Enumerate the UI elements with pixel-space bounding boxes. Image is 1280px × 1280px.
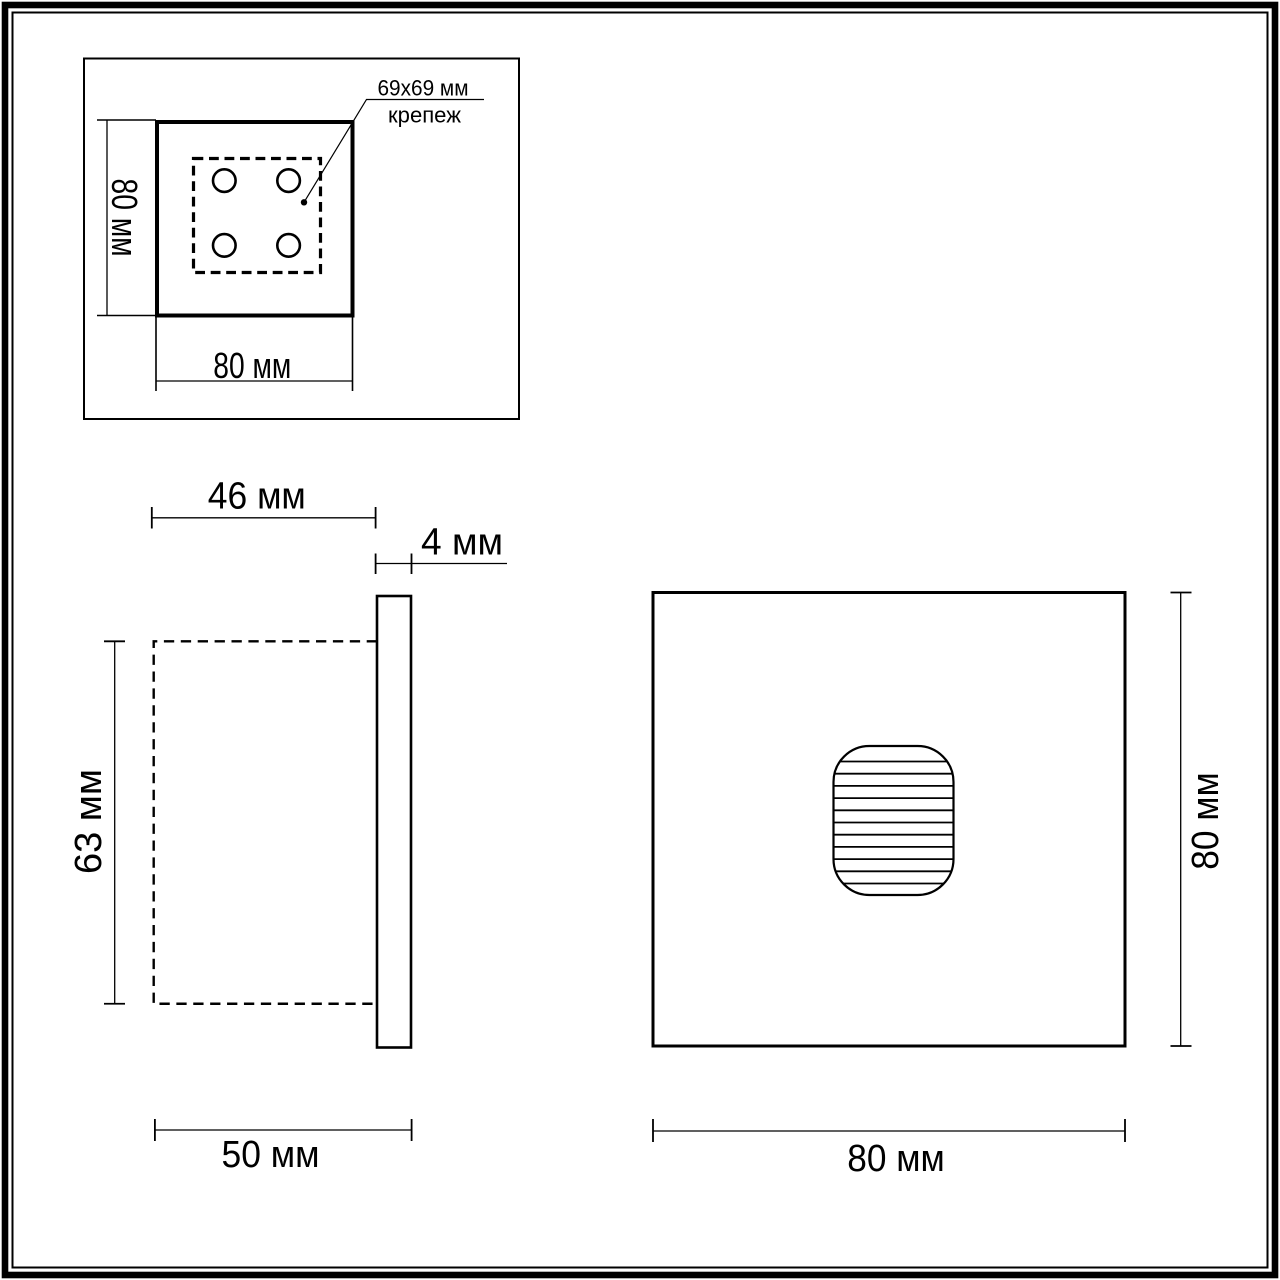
svg-text:46 мм: 46 мм: [208, 476, 306, 518]
svg-text:69x69 мм: 69x69 мм: [378, 76, 469, 101]
svg-text:80 мм: 80 мм: [104, 179, 145, 257]
svg-text:50 мм: 50 мм: [222, 1134, 320, 1176]
svg-text:80 мм: 80 мм: [213, 345, 291, 386]
svg-text:63 мм: 63 мм: [68, 769, 110, 874]
svg-text:крепеж: крепеж: [388, 103, 461, 128]
svg-text:80 мм: 80 мм: [847, 1138, 945, 1180]
svg-text:80 мм: 80 мм: [1185, 772, 1227, 870]
svg-text:4 мм: 4 мм: [421, 522, 503, 564]
